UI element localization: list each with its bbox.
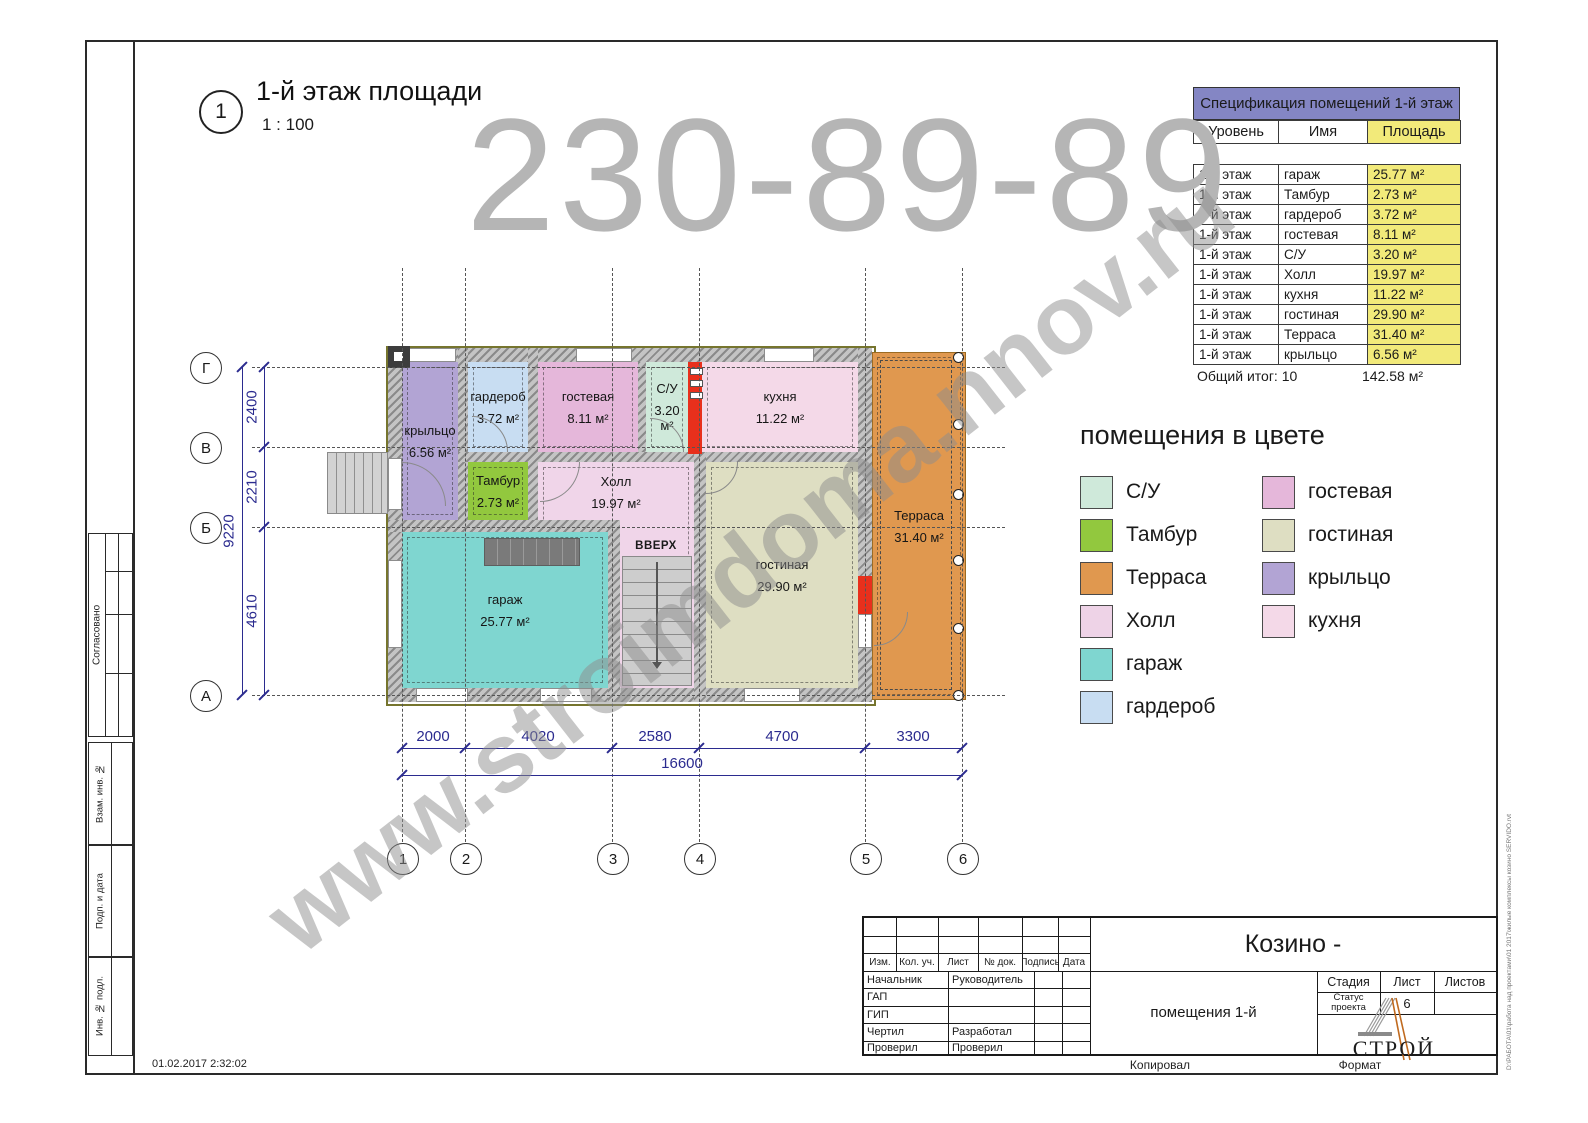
view-scale: 1 : 100: [262, 115, 314, 135]
tb-role: ГИП: [864, 1006, 948, 1023]
entrance-steps: [327, 452, 388, 514]
spec-row: 1-й этажкухня11.22 м²: [1194, 285, 1461, 305]
stroy-logo-icon: СТРОЙ: [1334, 996, 1454, 1062]
spec-row: 1-й этажТерраса31.40 м²: [1194, 325, 1461, 345]
dim-4610: 4610: [244, 594, 261, 627]
stamp-inv-podl-label: Инв. № подл.: [89, 958, 111, 1055]
dim-3300: 3300: [896, 728, 929, 745]
room-su-label: С/У: [656, 381, 677, 396]
view-title: 1-й этаж площади: [256, 76, 482, 107]
room-kuhnya: кухня 11.22 м²: [702, 362, 858, 452]
grid-line-2: [465, 268, 466, 842]
tb-role: Начальник: [864, 971, 948, 988]
legend-swatch-gostevaya: [1262, 476, 1295, 509]
spec-col-area: Площадь: [1368, 121, 1461, 144]
dim-2400: 2400: [244, 390, 261, 423]
axis-bubble-3: 3: [597, 843, 629, 875]
room-garazh-label: гараж: [488, 592, 523, 607]
legend-item: гараж: [1080, 647, 1215, 681]
room-gostinaya-label: гостиная: [756, 557, 809, 572]
legend-item: Холл: [1080, 604, 1215, 638]
legend-swatch-garderob: [1080, 691, 1113, 724]
window-top-gostevaya: [576, 348, 632, 362]
stamp-podp-data-label: Подп. и дата: [89, 846, 111, 956]
vent-slot: [690, 392, 703, 399]
dim-2000: 2000: [416, 728, 449, 745]
legend-column-right: гостевая гостиная крыльцо кухня: [1262, 475, 1393, 647]
sheet-inner-frame-line: [133, 40, 135, 1075]
legend-swatch-gostinaya: [1262, 519, 1295, 552]
grid-line-6: [962, 268, 963, 842]
stamp-vzam-inv-label: Взам. инв. №: [89, 743, 111, 844]
stamp-vzam-inv-box: Взам. инв. №: [88, 742, 133, 845]
spec-row: 1-й этажгардероб3.72 м²: [1194, 205, 1461, 225]
dim-line-left-segments: [264, 367, 265, 695]
tb-role2: Руководитель: [949, 971, 1034, 988]
grid-line-5: [865, 268, 866, 842]
view-number-bubble: 1: [199, 90, 243, 134]
spec-col-name: Имя: [1279, 121, 1368, 144]
window-top-kuhnya: [764, 348, 814, 362]
room-garazh-area: 25.77 м²: [480, 614, 529, 629]
legend-swatch-kuhnya: [1262, 605, 1295, 638]
legend-swatch-terrasa: [1080, 562, 1113, 595]
legend-item: Тамбур: [1080, 518, 1215, 552]
legend-item: гостиная: [1262, 518, 1393, 552]
dim-2210: 2210: [244, 470, 261, 503]
room-tambur-label: Тамбур: [476, 473, 520, 488]
room-kuhnya-label: кухня: [763, 389, 796, 404]
room-gostevaya-area: 8.11 м²: [567, 411, 608, 426]
grid-line-v: [252, 447, 1005, 448]
tb-role: Проверил: [864, 1041, 948, 1054]
dim-9220: 9220: [221, 514, 238, 547]
grid-line-3: [612, 268, 613, 842]
dim-line-bottom-total: [402, 775, 962, 776]
legend-item: гардероб: [1080, 690, 1215, 724]
stamp-approved-box: Согласовано: [88, 533, 133, 737]
flue-symbol: [388, 346, 410, 368]
spec-total-value: 142.58 м²: [1362, 368, 1423, 384]
spec-row: 1-й этажС/У3.20 м²: [1194, 245, 1461, 265]
legend-title: помещения в цвете: [1080, 420, 1325, 451]
axis-bubble-6: 6: [947, 843, 979, 875]
tb-list-label: Лист: [1380, 971, 1434, 992]
stamp-approved-label: Согласовано: [89, 534, 105, 736]
stroy-logo: СТРОЙ: [1334, 996, 1454, 1062]
room-gostevaya-label: гостевая: [562, 389, 614, 404]
room-gostinaya: гостиная 29.90 м²: [706, 462, 858, 688]
legend-item: Терраса: [1080, 561, 1215, 595]
stairs-up-label: ВВЕРХ: [616, 540, 696, 552]
dim-4020: 4020: [521, 728, 554, 745]
room-tambur: Тамбур 2.73 м²: [468, 462, 528, 520]
window-left-garage: [388, 560, 402, 648]
stamp-podp-data-box: Подп. и дата: [88, 845, 133, 957]
axis-bubble-g: Г: [190, 352, 222, 384]
title-block: Изм. Кол. уч. Лист № док. Подпись Дата Н…: [862, 916, 1498, 1056]
tb-role: Чертил: [864, 1023, 948, 1041]
dim-line-bottom-segments: [402, 748, 962, 749]
spec-row: 1-й этажгостиная29.90 м²: [1194, 305, 1461, 325]
room-garderob-label: гардероб: [470, 389, 525, 404]
axis-bubble-2: 2: [450, 843, 482, 875]
vent-slot: [690, 368, 703, 375]
axis-bubble-4: 4: [684, 843, 716, 875]
view-number: 1: [215, 100, 227, 124]
tb-col-list: Лист: [938, 953, 978, 971]
axis-bubble-b: Б: [190, 512, 222, 544]
tb-stage-label: Стадия: [1317, 971, 1380, 992]
tb-role2: Проверил: [949, 1041, 1034, 1054]
legend-item: крыльцо: [1262, 561, 1393, 595]
room-holl-label: Холл: [601, 474, 632, 489]
legend-swatch-kryltso: [1262, 562, 1295, 595]
tb-role2: [949, 988, 1034, 1006]
wall-mid-horizontal: [458, 452, 858, 462]
grid-line-g: [252, 367, 1005, 368]
stairs-direction-arrow: [656, 562, 658, 664]
dim-16600: 16600: [661, 755, 703, 772]
wall-garage-top: [388, 520, 620, 532]
wall-gostevaya-su: [638, 362, 646, 456]
wall-kryltso-garderob: [458, 348, 468, 522]
tb-col-data: Дата: [1058, 953, 1090, 971]
window-top-kryltso: [408, 348, 456, 362]
phone-watermark: 230-89-89: [466, 95, 1231, 255]
wall-garderob-gostevaya: [528, 348, 538, 522]
legend-column-left: С/У Тамбур Терраса Холл гараж гардероб: [1080, 475, 1215, 733]
legend-item: кухня: [1262, 604, 1393, 638]
tb-col-izm: Изм.: [864, 953, 896, 971]
axis-bubble-v: В: [190, 432, 222, 464]
axis-bubble-a: А: [190, 680, 222, 712]
grid-line-b: [252, 527, 1005, 528]
legend-item: С/У: [1080, 475, 1215, 509]
footer-copied-label: Копировал: [1100, 1058, 1220, 1072]
timestamp: 01.02.2017 2:32:02: [152, 1058, 247, 1070]
spec-row: 1-й этажТамбур2.73 м²: [1194, 185, 1461, 205]
room-holl-area: 19.97 м²: [591, 496, 640, 511]
room-gostevaya: гостевая 8.11 м²: [538, 362, 638, 452]
grid-line-a: [252, 695, 1005, 696]
spec-row: 1-й этажгараж25.77 м²: [1194, 165, 1461, 185]
spec-row: 1-й этажХолл19.97 м²: [1194, 265, 1461, 285]
tb-sheet-name: помещения 1-й: [1090, 971, 1317, 1054]
tb-col-koluch: Кол. уч.: [896, 953, 938, 971]
spec-table-title: Спецификация помещений 1-й этаж: [1193, 87, 1460, 120]
dim-2580: 2580: [638, 728, 671, 745]
dim-4700: 4700: [765, 728, 798, 745]
spec-row: 1-й этажкрыльцо6.56 м²: [1194, 345, 1461, 365]
tb-role2: Разработал: [949, 1023, 1034, 1041]
tb-project-title: Козино -: [1090, 918, 1496, 971]
legend-swatch-tambur: [1080, 519, 1113, 552]
vent-slot: [690, 380, 703, 387]
spec-table-header: Уровень Имя Площадь: [1193, 120, 1461, 144]
tb-col-dok: № док.: [978, 953, 1022, 971]
room-kryltso-label: крыльцо: [404, 423, 455, 438]
legend-swatch-garazh: [1080, 648, 1113, 681]
tb-lists-label: Листов: [1434, 971, 1496, 992]
stamp-inv-podl-box: Инв. № подл.: [88, 957, 133, 1056]
garage-bench: [484, 538, 580, 566]
spec-table: Спецификация помещений 1-й этаж Уровень …: [1193, 87, 1460, 384]
room-gostinaya-area: 29.90 м²: [757, 579, 806, 594]
room-kuhnya-area: 11.22 м²: [756, 411, 804, 426]
wall-holl-gostinaya: [694, 452, 706, 702]
room-tambur-area: 2.73 м²: [477, 495, 519, 510]
tb-role2: [949, 1006, 1034, 1023]
axis-bubble-5: 5: [850, 843, 882, 875]
legend-swatch-su: [1080, 476, 1113, 509]
door-opening-kryltso: [388, 458, 402, 510]
spec-row: 1-й этажгостевая8.11 м²: [1194, 225, 1461, 245]
footer-format-label: Формат: [1300, 1058, 1420, 1072]
tb-col-podpis: Подпись: [1022, 953, 1058, 971]
legend-swatch-holl: [1080, 605, 1113, 638]
file-path-vertical: D:\РАБОТА\01\работа над проектами\01 201…: [1506, 814, 1513, 1070]
legend-item: гостевая: [1262, 475, 1393, 509]
tb-role: ГАП: [864, 988, 948, 1006]
spec-total-label: Общий итог: 10: [1197, 368, 1362, 384]
grid-line-1: [402, 268, 403, 842]
spec-table-body: 1-й этажгараж25.77 м² 1-й этажТамбур2.73…: [1193, 164, 1461, 365]
axis-bubble-1: 1: [387, 843, 419, 875]
